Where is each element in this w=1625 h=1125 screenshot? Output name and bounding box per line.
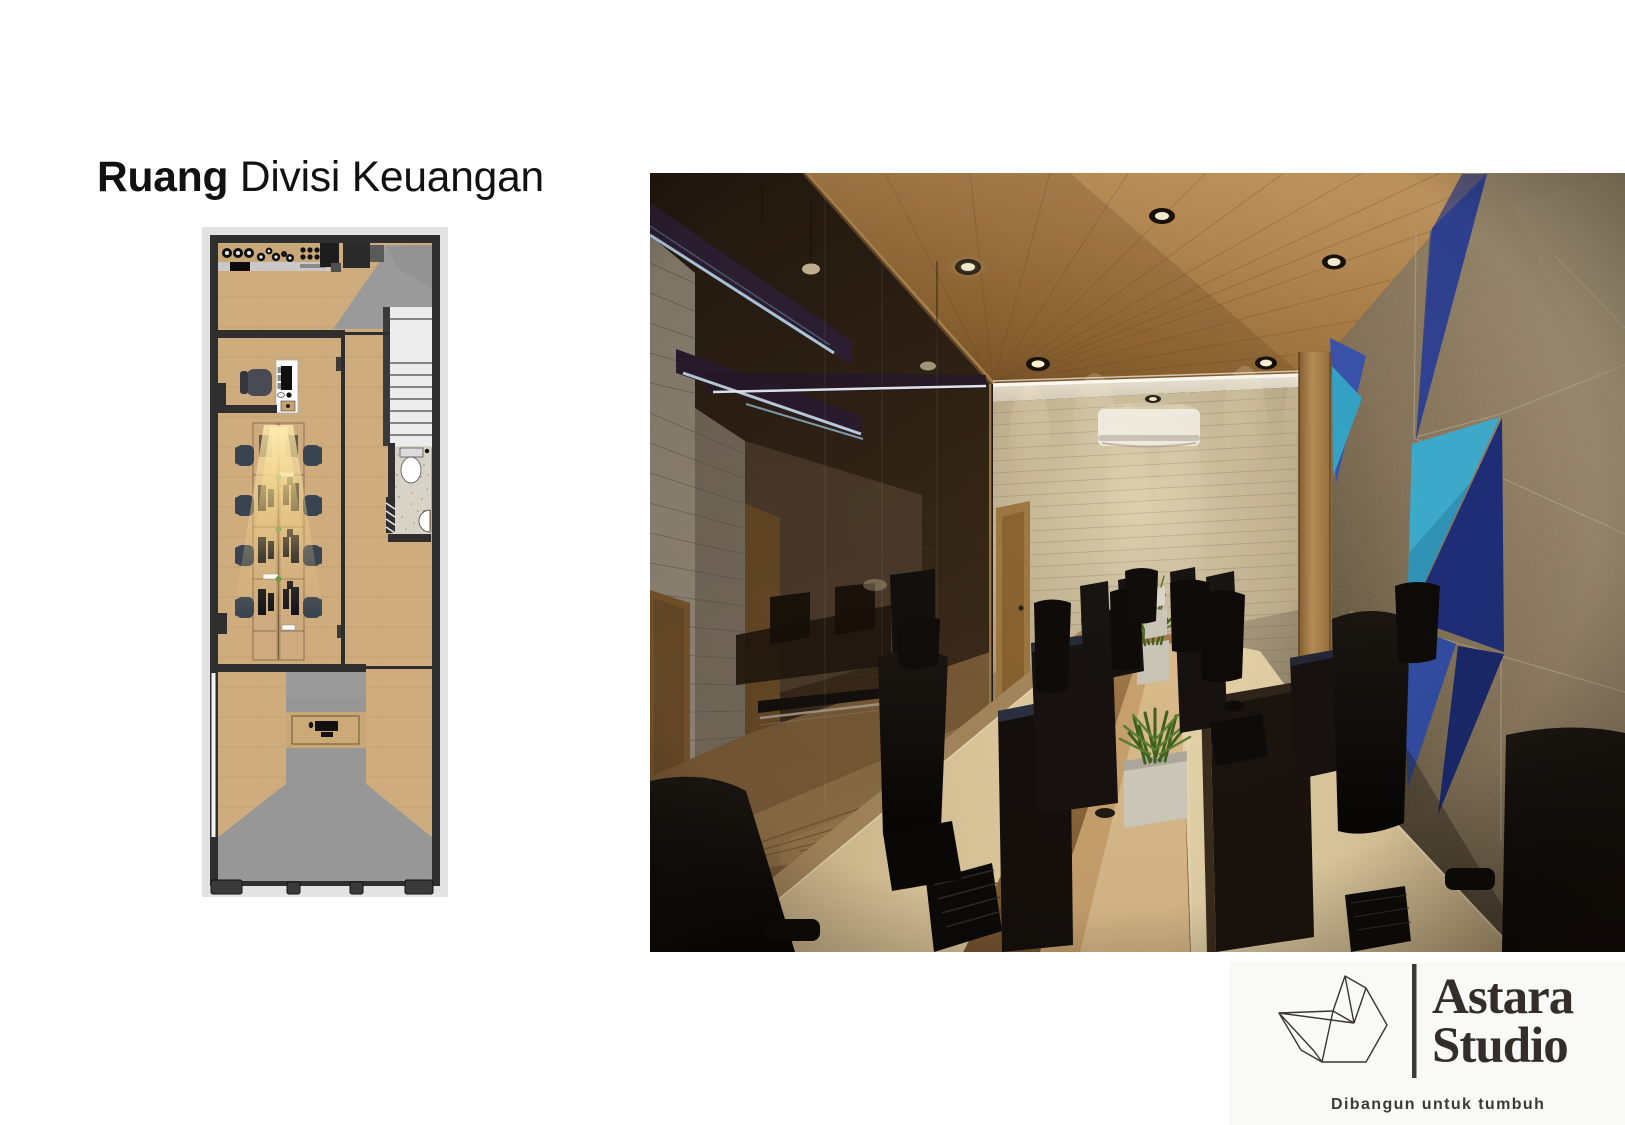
svg-text:Astara: Astara bbox=[1432, 969, 1574, 1025]
svg-text:Dibangun untuk tumbuh: Dibangun untuk tumbuh bbox=[1331, 1096, 1545, 1113]
svg-text:Studio: Studio bbox=[1432, 1018, 1568, 1074]
